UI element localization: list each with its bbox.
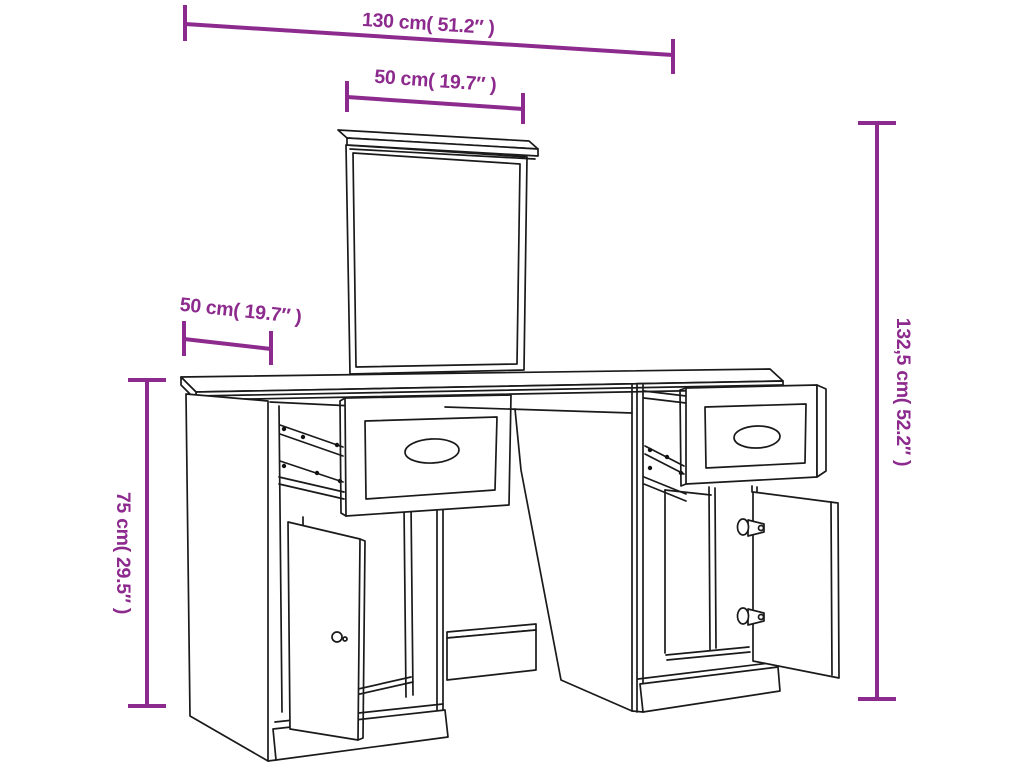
mirror [338,130,538,374]
bottom-stretcher-rail [447,624,536,680]
label-desk-height: 75 cm( 29.5″ ) [112,492,134,614]
left-door-knob [332,632,342,642]
dimension-line [347,97,523,109]
dimension-depth [184,321,271,365]
left-drawer-open [340,395,511,516]
left-cabinet-door-open [288,522,365,740]
dressing-table-dimension-drawing: 130 cm( 51.2″ ) 50 cm( 19.7″ ) 50 cm( 19… [0,0,1024,768]
product-dimension-diagram: 130 cm( 51.2″ ) 50 cm( 19.7″ ) 50 cm( 19… [0,0,1024,768]
label-depth: 50 cm( 19.7″ ) [179,294,303,329]
furniture-drawing [181,130,839,761]
right-cabinet-door-open [738,492,840,678]
dimension-total-height [858,123,896,699]
label-total-height: 132,5 cm( 52.2″ ) [892,318,914,466]
label-mirror-width: 50 cm( 19.7″ ) [374,66,497,96]
drawer-slide-bolts [282,427,342,483]
dimension-line [184,339,271,349]
right-drawer-open [680,385,826,486]
